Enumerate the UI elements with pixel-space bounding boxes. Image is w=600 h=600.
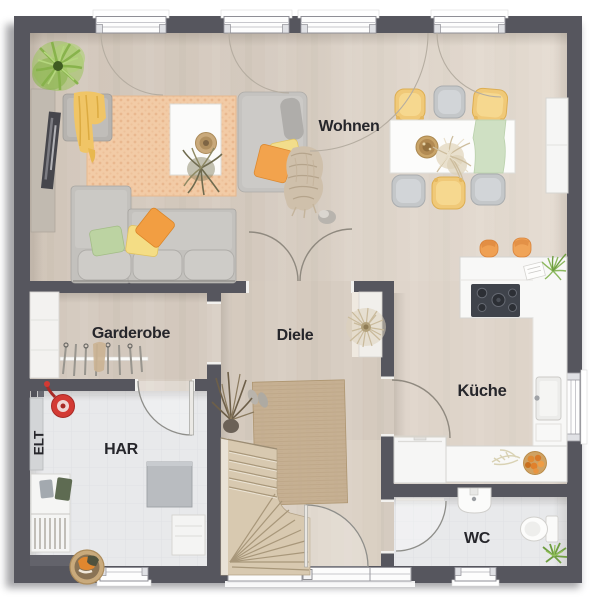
svg-text:Wohnen: Wohnen [318, 118, 379, 135]
svg-text:Küche: Küche [458, 382, 507, 400]
svg-text:Diele: Diele [277, 327, 314, 344]
svg-text:WC: WC [464, 530, 491, 547]
svg-text:Garderobe: Garderobe [92, 325, 171, 342]
svg-text:HAR: HAR [104, 441, 139, 458]
svg-text:ELT: ELT [32, 430, 47, 455]
